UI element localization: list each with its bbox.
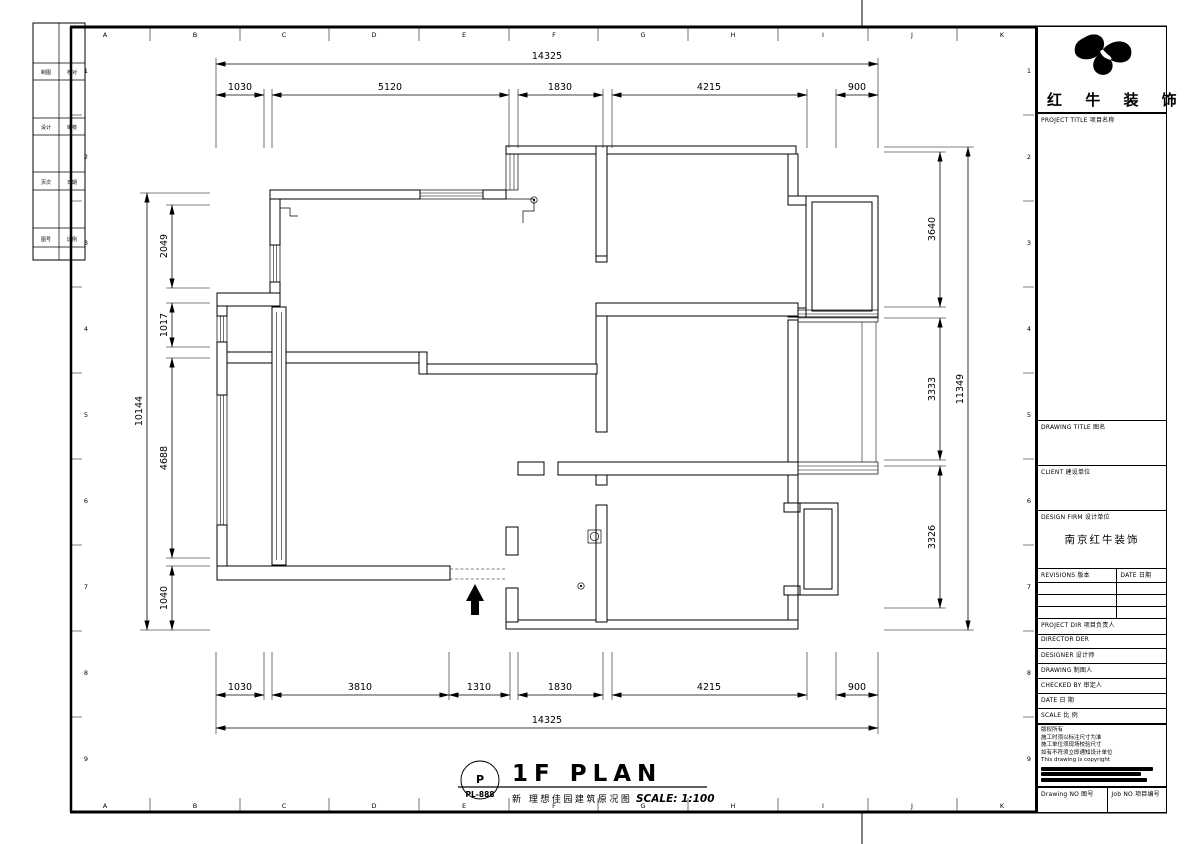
dim-top-overall: 14325	[532, 51, 562, 62]
grid-letter: E	[462, 31, 466, 39]
row-number: 4	[1027, 325, 1031, 333]
grid-letter: J	[910, 31, 913, 39]
checked-by-cell: CHECKED BY 审定人	[1038, 678, 1166, 693]
design-firm-value: 南京红牛装饰	[1038, 532, 1166, 547]
scale-cell: SCALE 比 例	[1038, 708, 1166, 723]
row-number: 7	[1027, 583, 1031, 591]
row-number: 7	[84, 583, 88, 591]
grid-letter: K	[1000, 802, 1005, 810]
grid-letter: A	[103, 802, 108, 810]
dim-top-seg: 1830	[548, 82, 572, 93]
stamp-letter: P	[476, 773, 484, 786]
grid-letter: A	[103, 31, 108, 39]
grid-letter: F	[552, 31, 556, 39]
row-number: 8	[84, 669, 88, 677]
company-name: 红 牛 装 饰	[1038, 89, 1166, 110]
grid-letters-top: A B C D E F G H I J K	[103, 28, 1005, 41]
revisions-row	[1038, 606, 1166, 618]
dim-right-seg: 3326	[927, 525, 938, 549]
plan-subtitle: 新 理想佳园建筑原况图	[512, 793, 632, 805]
drawing-no-label: Drawing NO 图号	[1038, 788, 1108, 812]
grid-letter: G	[640, 31, 645, 39]
copyright-line: 版权所有	[1041, 727, 1163, 735]
project-dir-cell: PROJECT DIR 项目负责人	[1038, 618, 1166, 634]
row-number: 3	[1027, 239, 1031, 247]
row-numbers-right: 1 2 3 4 5 6 7 8 9	[1023, 67, 1034, 763]
drawing-by-label: DRAWING 制图人	[1038, 664, 1166, 675]
dim-left-seg: 2049	[159, 234, 170, 258]
dim-bottom-overall: 14325	[532, 715, 562, 726]
drawing-title-label: DRAWING TITLE 图名	[1038, 421, 1166, 432]
dim-bottom-seg: 3810	[348, 682, 372, 693]
row-number: 5	[84, 411, 88, 419]
grid-letter: H	[731, 31, 736, 39]
project-title-cell: PROJECT TITLE 项目名称	[1038, 112, 1166, 420]
dim-bottom-seg: 1830	[548, 682, 572, 693]
row-number: 2	[1027, 153, 1031, 161]
revisions-label: REVISIONS 版本	[1038, 569, 1117, 582]
signature-cell: 制图	[41, 69, 51, 76]
grid-letter: C	[282, 31, 287, 39]
drawing-title-cell: DRAWING TITLE 图名	[1038, 420, 1166, 465]
signature-cell: 日期	[67, 180, 77, 186]
fixture-symbols	[531, 197, 601, 589]
row-number: 9	[84, 755, 88, 763]
row-number: 6	[1027, 497, 1031, 505]
row-number: 8	[1027, 669, 1031, 677]
plan-canvas: A B C D E F G H I J K A B C D E F G H I …	[0, 0, 1200, 844]
entry-arrow-icon	[466, 584, 484, 615]
entry-marker	[450, 569, 506, 615]
designer-cell: DESIGNER 设计师	[1038, 648, 1166, 663]
drawing-sheet: A B C D E F G H I J K A B C D E F G H I …	[0, 0, 1200, 844]
director-label: DIRECTOR DER	[1038, 635, 1166, 644]
grid-letter: C	[282, 802, 287, 810]
copyright-smudged-line	[1041, 778, 1147, 782]
dim-left-seg: 1017	[159, 313, 170, 337]
designer-label: DESIGNER 设计师	[1038, 649, 1166, 660]
plan-title: 1F PLAN	[512, 761, 662, 787]
signature-cell: 审核	[67, 124, 77, 131]
footer-title: P PL-888 1F PLAN 新 理想佳园建筑原况图 SCALE: 1:10…	[458, 761, 715, 805]
project-dir-label: PROJECT DIR 项目负责人	[1038, 619, 1166, 630]
copyright-line: This drawing is copyright	[1041, 757, 1163, 765]
date-cell: DATE 日 期	[1038, 693, 1166, 708]
revisions-row	[1038, 594, 1166, 606]
signature-strip: 制图 校对 设计 审核 页次 日期 图号 比例	[33, 23, 85, 260]
client-cell: CLIENT 建设单位	[1038, 465, 1166, 510]
copyright-cell: 版权所有 施工时须以标注尺寸为准 施工单位须现场校验尺寸 如有不符须立即通知设计…	[1038, 723, 1166, 786]
grid-letter: B	[193, 802, 197, 810]
director-cell: DIRECTOR DER	[1038, 634, 1166, 648]
grid-letter: D	[371, 802, 376, 810]
dim-bottom-seg: 1030	[228, 682, 252, 693]
copyright-line: 施工单位须现场校验尺寸	[1041, 742, 1163, 750]
floor-plan-walls	[217, 146, 878, 629]
dim-bottom-seg: 4215	[697, 682, 721, 693]
grid-letter: I	[822, 802, 824, 810]
dim-top-seg: 900	[848, 82, 866, 93]
row-number: 9	[1027, 755, 1031, 763]
company-logo-icon	[1063, 29, 1141, 85]
row-number: 5	[1027, 411, 1031, 419]
signature-cell: 设计	[41, 124, 51, 131]
signature-cell: 页次	[41, 179, 51, 186]
client-label: CLIENT 建设单位	[1038, 466, 1166, 477]
scale-label: SCALE 比 例	[1038, 709, 1166, 720]
drawing-by-cell: DRAWING 制图人	[1038, 663, 1166, 678]
grid-letter: J	[910, 802, 913, 810]
project-title-label: PROJECT TITLE 项目名称	[1038, 114, 1166, 125]
date-label: DATE 日 期	[1038, 694, 1166, 705]
design-firm-label: DESIGN FIRM 设计单位	[1038, 511, 1166, 522]
plan-scale: SCALE: 1:100	[636, 793, 715, 805]
copyright-smudged-line	[1041, 767, 1153, 771]
row-number: 4	[84, 325, 88, 333]
dim-bottom-seg: 900	[848, 682, 866, 693]
dim-left-seg: 4688	[159, 446, 170, 470]
revisions-row	[1038, 582, 1166, 594]
dim-top-seg: 1030	[228, 82, 252, 93]
title-block: 红 牛 装 饰 PROJECT TITLE 项目名称 DRAWING TITLE…	[1035, 27, 1167, 812]
design-firm-cell: DESIGN FIRM 设计单位 南京红牛装饰	[1038, 510, 1166, 568]
signature-cell: 比例	[67, 236, 77, 243]
checked-by-label: CHECKED BY 审定人	[1038, 679, 1166, 690]
dim-top-seg: 5120	[378, 82, 402, 93]
copyright-smudged-line	[1041, 772, 1141, 776]
copyright-line: 如有不符须立即通知设计单位	[1041, 750, 1163, 758]
dim-top-seg: 4215	[697, 82, 721, 93]
sheet-border	[70, 0, 1167, 844]
revisions-date-label: DATE 日期	[1117, 569, 1166, 582]
dim-left-overall: 10144	[134, 396, 145, 426]
grid-letter: D	[371, 31, 376, 39]
dim-right-seg: 3640	[927, 217, 938, 241]
dim-right-overall: 11349	[955, 374, 966, 404]
signature-cell: 校对	[67, 69, 77, 76]
grid-letter: K	[1000, 31, 1005, 39]
dim-bottom-seg: 1310	[467, 682, 491, 693]
grid-letter: I	[822, 31, 824, 39]
row-number: 1	[1027, 67, 1031, 75]
drawing-no-cell: Drawing NO 图号 Job NO 项目编号	[1038, 786, 1166, 812]
revisions-header: REVISIONS 版本 DATE 日期	[1038, 568, 1166, 582]
stamp-code: PL-888	[465, 790, 494, 799]
job-no-label: Job NO 项目编号	[1108, 788, 1166, 812]
dim-left-seg: 1040	[159, 586, 170, 610]
signature-cell: 图号	[41, 237, 51, 243]
grid-letter: H	[731, 802, 736, 810]
dim-right-seg: 3333	[927, 377, 938, 401]
grid-letter: E	[462, 802, 466, 810]
row-numbers-left: 1 2 3 4 5 6 7 8 9	[71, 67, 88, 763]
grid-letter: B	[193, 31, 197, 39]
row-number: 6	[84, 497, 88, 505]
logo-cell: 红 牛 装 饰	[1038, 27, 1166, 112]
